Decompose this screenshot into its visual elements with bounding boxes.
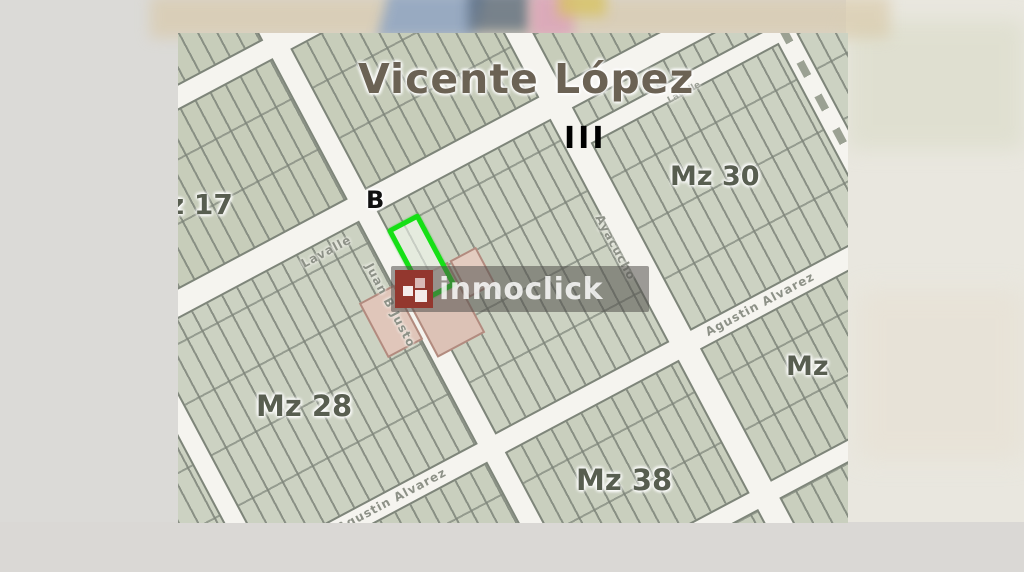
intersection-label-b: B	[366, 186, 384, 214]
block-label-mz30: Mz 30	[670, 161, 760, 192]
watermark-text: inmoclick	[439, 272, 603, 307]
background-photo-top	[468, 0, 530, 32]
background-photo-right-detail	[848, 20, 1024, 150]
block-label-mz-right: Mz	[786, 351, 829, 382]
block-label-mz38: Mz 38	[576, 463, 672, 497]
block-label-mz28: Mz 28	[256, 389, 352, 423]
cadastral-map: Lavalle Lavalle Juan B Justo Ayacucho Ag…	[178, 33, 848, 523]
background-photo-right-detail	[858, 290, 1024, 460]
watermark-badge: inmoclick	[391, 266, 649, 312]
block-label-mz17: Mz 17	[178, 188, 233, 221]
background-photo-bottom	[0, 522, 1024, 572]
background-photo-top	[558, 0, 606, 16]
inmoclick-logo-icon	[395, 270, 433, 308]
map-title: Vicente López	[358, 55, 694, 103]
zone-label-iii: III	[564, 121, 607, 156]
